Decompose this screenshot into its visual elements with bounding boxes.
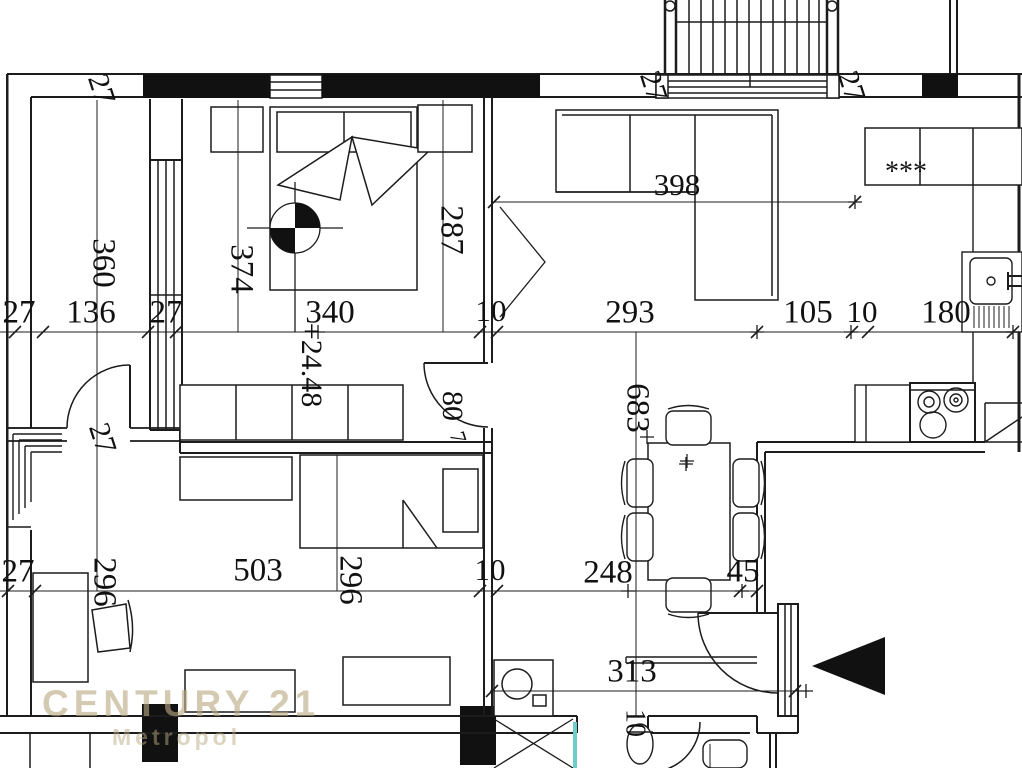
nightstand-right (418, 105, 472, 152)
dimension-label: 287 (433, 205, 469, 255)
entry-door (698, 604, 798, 716)
dimension-label: 683 (619, 383, 655, 433)
dimension-label: 10 (847, 294, 878, 329)
dimension-label: 248 (583, 555, 633, 591)
master-bedroom-door (67, 365, 130, 428)
dimension-label: 398 (654, 167, 701, 202)
entry-step-wall (757, 716, 798, 768)
dimension-label: 27 (150, 295, 183, 331)
dimension-label: 27 (3, 295, 36, 331)
tall-window (150, 99, 182, 430)
desk-chair (92, 600, 133, 652)
dimension-label: 136 (66, 295, 116, 331)
dimension-label: 45 (727, 554, 760, 590)
dimension-label: 80 (436, 391, 469, 421)
dimension-label: 27 (633, 67, 674, 106)
entry-arrow-icon (812, 637, 885, 695)
washing-machine (494, 660, 553, 716)
master-bed (270, 107, 430, 290)
kitchen-corner-counter (985, 403, 1022, 442)
floor-plan: 272727360374287398+24.482713627340102931… (0, 0, 1022, 768)
bathroom-door (650, 722, 700, 768)
desk (33, 573, 88, 682)
shower (494, 719, 575, 768)
dimension-label: 374 (223, 244, 259, 294)
dimension-label: 296 (332, 555, 368, 605)
dimension-label: 293 (605, 295, 655, 331)
balcony-sliding-door (656, 75, 839, 98)
left-window-bay (7, 428, 62, 527)
dimension-labels: 272727360374287398+24.482713627340102931… (2, 67, 971, 737)
dimension-label: 340 (305, 295, 355, 331)
nightstand-left (211, 107, 263, 152)
railing-bars (689, 0, 819, 74)
floor-plan-drawing: 272727360374287398+24.482713627340102931… (0, 0, 1022, 768)
dimension-label: *** (885, 156, 927, 187)
wardrobe (180, 385, 403, 440)
kitchen-stove (855, 383, 975, 442)
dimension-label: 503 (233, 553, 283, 589)
bedroom-partition-wall (484, 97, 492, 716)
dimension-label: 10 (620, 709, 651, 737)
dresser-low (185, 657, 450, 712)
dimension-label: 7 (445, 428, 472, 446)
bedroom-window (270, 75, 322, 98)
dimension-label: 296 (86, 557, 122, 607)
left-exterior-wall (7, 74, 31, 716)
shelf-unit (180, 457, 292, 500)
dimension-label: +24.48 (295, 323, 328, 407)
kitchen-dining-wall (757, 442, 985, 613)
toilet (703, 740, 747, 768)
dimension-label: 10 (476, 293, 507, 328)
dimension-label: 313 (607, 654, 657, 690)
dimension-label: 10 (475, 552, 506, 587)
single-bed (300, 455, 483, 548)
balcony-railing (665, 0, 957, 74)
dimension-label: 27 (81, 70, 122, 109)
dimension-ticks (2, 196, 1019, 697)
kitchen-sink (962, 252, 1022, 332)
dimension-label: 105 (783, 295, 833, 331)
dimension-label: 180 (921, 295, 971, 331)
tv-unit (500, 207, 545, 317)
dimension-label: 27 (2, 554, 35, 590)
sofa (556, 110, 778, 300)
dimension-label: 27 (82, 419, 123, 458)
dimension-label: 360 (85, 238, 121, 288)
